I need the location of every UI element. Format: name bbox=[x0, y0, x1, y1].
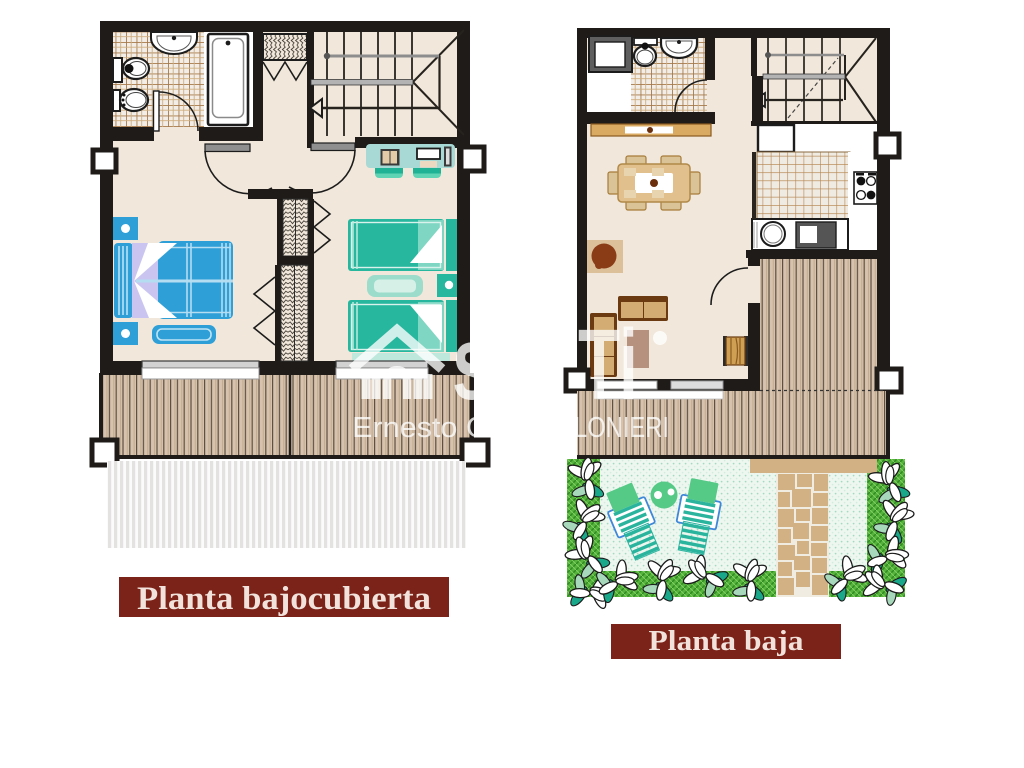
svg-text:Planta baja: Planta baja bbox=[649, 626, 804, 657]
svg-text:Ernesto C: Ernesto C bbox=[352, 412, 488, 444]
svg-text:s: s bbox=[452, 305, 492, 422]
svg-text:Planta bajocubierta: Planta bajocubierta bbox=[137, 581, 431, 617]
svg-text:Ti: Ti bbox=[578, 309, 638, 421]
svg-text:LONIERI: LONIERI bbox=[574, 412, 669, 444]
